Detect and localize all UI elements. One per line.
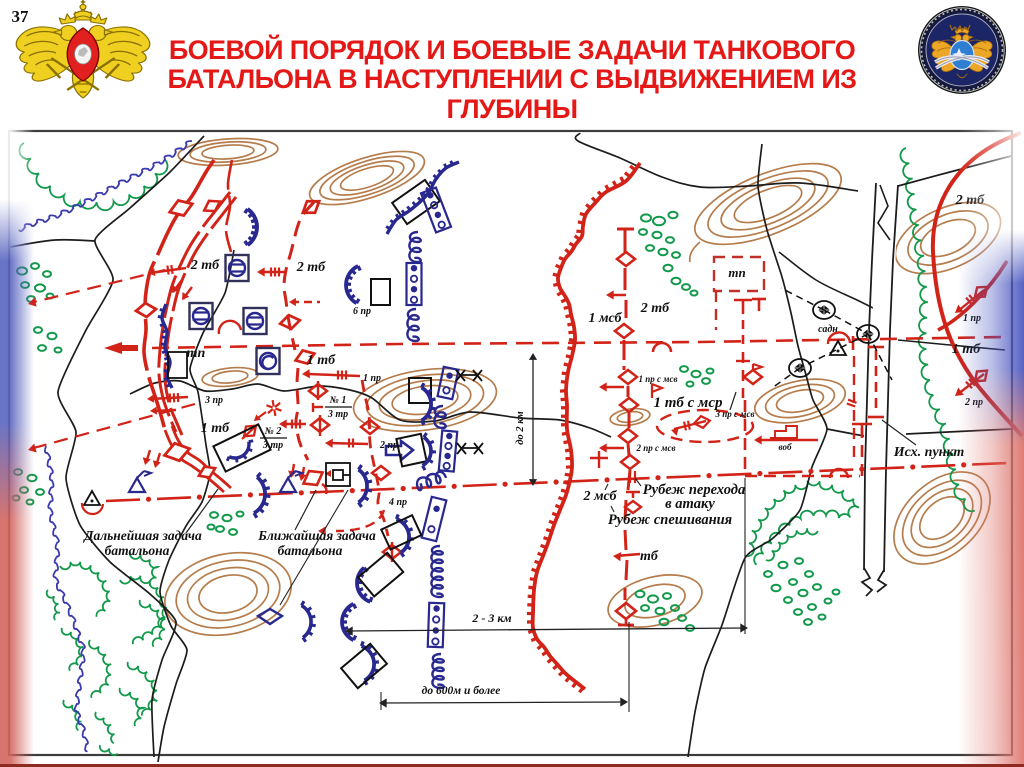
svg-text:Ближайшая задача: Ближайшая задача xyxy=(257,528,376,543)
svg-text:тп: тп xyxy=(728,265,745,280)
svg-text:батальона: батальона xyxy=(105,543,170,558)
svg-text:1 тб: 1 тб xyxy=(307,353,336,368)
svg-text:батальона: батальона xyxy=(278,543,343,558)
svg-text:6 пр: 6 пр xyxy=(353,306,371,317)
svg-text:Рубеж спешивания: Рубеж спешивания xyxy=(608,512,732,528)
svg-text:2 пр с мсв: 2 пр с мсв xyxy=(636,443,676,453)
svg-text:3 пр с мсв: 3 пр с мсв xyxy=(715,409,755,419)
svg-text:37: 37 xyxy=(12,7,30,26)
svg-text:1 тб с мср: 1 тб с мср xyxy=(654,395,723,411)
svg-text:1 пр: 1 пр xyxy=(363,373,381,384)
svg-text:до 2 км: до 2 км xyxy=(515,411,526,444)
svg-text:2 пр: 2 пр xyxy=(379,440,398,451)
svg-text:ГЛУБИНЫ: ГЛУБИНЫ xyxy=(447,94,578,124)
svg-text:тп: тп xyxy=(187,346,206,361)
svg-text:Дальнейшая задача: Дальнейшая задача xyxy=(82,528,202,543)
svg-text:№ 1: № 1 xyxy=(329,395,347,406)
svg-text:2 тб: 2 тб xyxy=(190,258,220,273)
svg-text:3 тр: 3 тр xyxy=(262,440,283,451)
svg-text:2 тб: 2 тб xyxy=(296,260,326,275)
svg-text:Исх. пункт: Исх. пункт xyxy=(893,445,965,460)
svg-text:тб: тб xyxy=(640,549,659,564)
svg-text:1 мсб: 1 мсб xyxy=(588,311,622,326)
svg-text:2 - 3 км: 2 - 3 км xyxy=(471,611,511,625)
svg-text:4 пр: 4 пр xyxy=(388,497,407,508)
svg-text:№ 2: № 2 xyxy=(264,426,282,437)
svg-text:2 мсб: 2 мсб xyxy=(582,489,617,504)
svg-text:БОЕВОЙ ПОРЯДОК И БОЕВЫЕ ЗАДАЧ: БОЕВОЙ ПОРЯДОК И БОЕВЫЕ ЗАДАЧИ ТАНКОВОГО xyxy=(169,34,855,65)
svg-text:1 тб: 1 тб xyxy=(201,421,230,436)
svg-text:до 600м и более: до 600м и более xyxy=(422,685,501,697)
svg-text:в атаку: в атаку xyxy=(665,496,715,512)
svg-text:воб: воб xyxy=(779,442,792,452)
svg-text:садн: садн xyxy=(818,324,838,335)
svg-text:3 тр: 3 тр xyxy=(327,409,348,420)
svg-text:2 тб: 2 тб xyxy=(640,301,670,316)
svg-text:1 пр с мсв: 1 пр с мсв xyxy=(639,374,678,384)
svg-text:3 пр: 3 пр xyxy=(204,395,223,406)
svg-text:БАТАЛЬОНА В НАСТУПЛЕНИИ С ВЫДВ: БАТАЛЬОНА В НАСТУПЛЕНИИ С ВЫДВИЖЕНИЕМ ИЗ xyxy=(168,64,857,94)
